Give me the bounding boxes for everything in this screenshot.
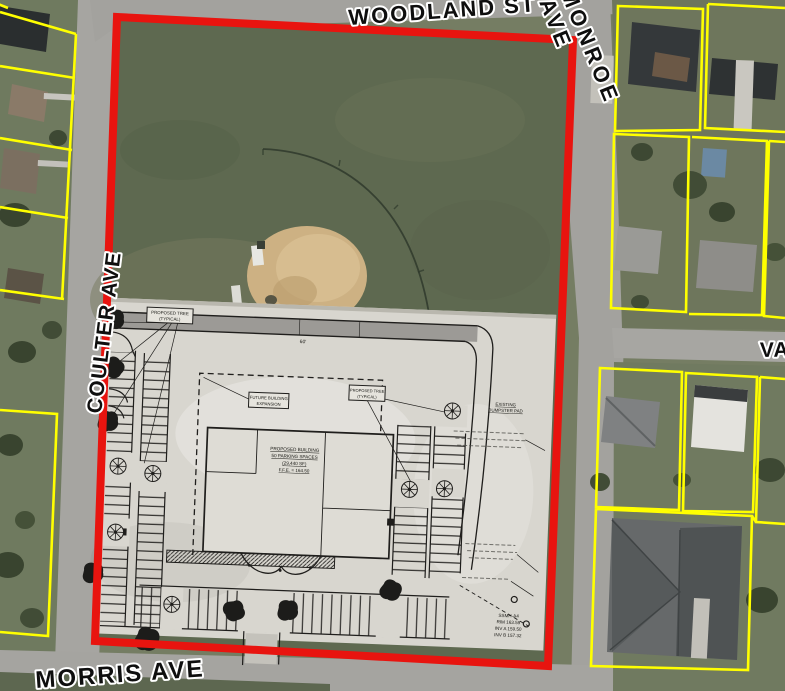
northeast-neighborhood — [612, 0, 785, 330]
site-plan-drawing: PROPOSED TREE (TYPICAL) FUTURE BUILDING … — [80, 297, 557, 677]
street-label-va: VA — [760, 338, 785, 362]
svg-text:INV B 157.32: INV B 157.32 — [494, 632, 522, 638]
house-roof — [0, 148, 40, 194]
house-roof — [696, 240, 757, 292]
house-roof — [614, 226, 662, 274]
svg-text:(TYPICAL): (TYPICAL) — [159, 316, 181, 322]
street-label-woodland: WOODLAND ST — [348, 0, 538, 30]
label-drive-dimension: 60' — [300, 339, 307, 345]
svg-text:(29,440 SF): (29,440 SF) — [282, 460, 307, 466]
svg-text:RIM 163.59: RIM 163.59 — [496, 619, 520, 625]
svg-text:(TYPICAL): (TYPICAL) — [357, 394, 377, 400]
house-roof — [4, 268, 44, 304]
label-dumpster: EXISTING — [495, 402, 516, 408]
map-canvas: PROPOSED TREE (TYPICAL) FUTURE BUILDING … — [0, 0, 785, 691]
svg-text:SSMH-A4: SSMH-A4 — [498, 613, 519, 619]
svg-text:INV A 159.50: INV A 159.50 — [495, 626, 522, 632]
svg-text:EXPANSION: EXPANSION — [256, 401, 280, 407]
aerial-site-map: PROPOSED TREE (TYPICAL) FUTURE BUILDING … — [0, 0, 785, 691]
